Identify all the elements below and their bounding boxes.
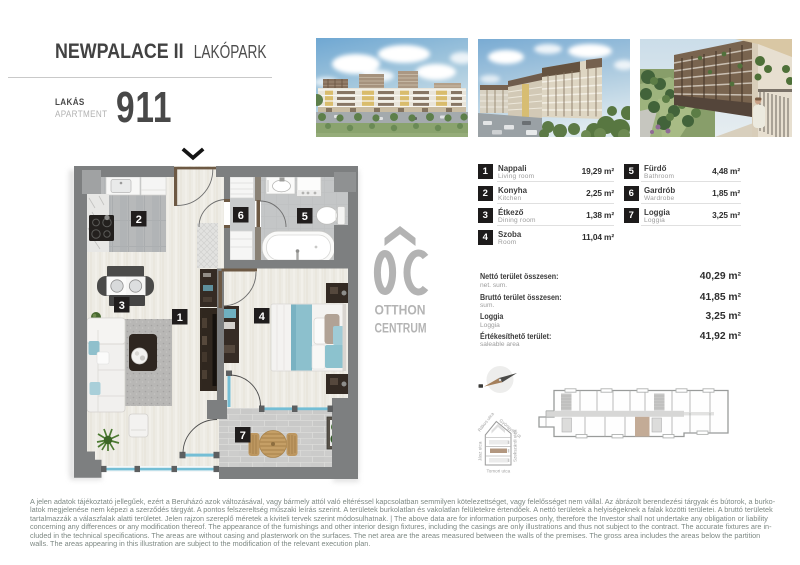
svg-text:Szekszárdi utca: Szekszárdi utca xyxy=(513,429,518,462)
svg-text:CENTRUM: CENTRUM xyxy=(375,321,427,336)
svg-text:7: 7 xyxy=(240,430,246,442)
svg-text:1: 1 xyxy=(177,312,183,324)
svg-text:4: 4 xyxy=(259,311,266,323)
svg-text:2: 2 xyxy=(136,214,142,226)
svg-text:Tomori utca: Tomori utca xyxy=(487,469,511,474)
svg-text:OTTHON: OTTHON xyxy=(375,303,426,318)
svg-text:6: 6 xyxy=(238,210,244,222)
svg-text:5: 5 xyxy=(302,211,308,223)
svg-text:3: 3 xyxy=(119,300,125,312)
svg-text:Jász utca: Jász utca xyxy=(478,441,483,461)
